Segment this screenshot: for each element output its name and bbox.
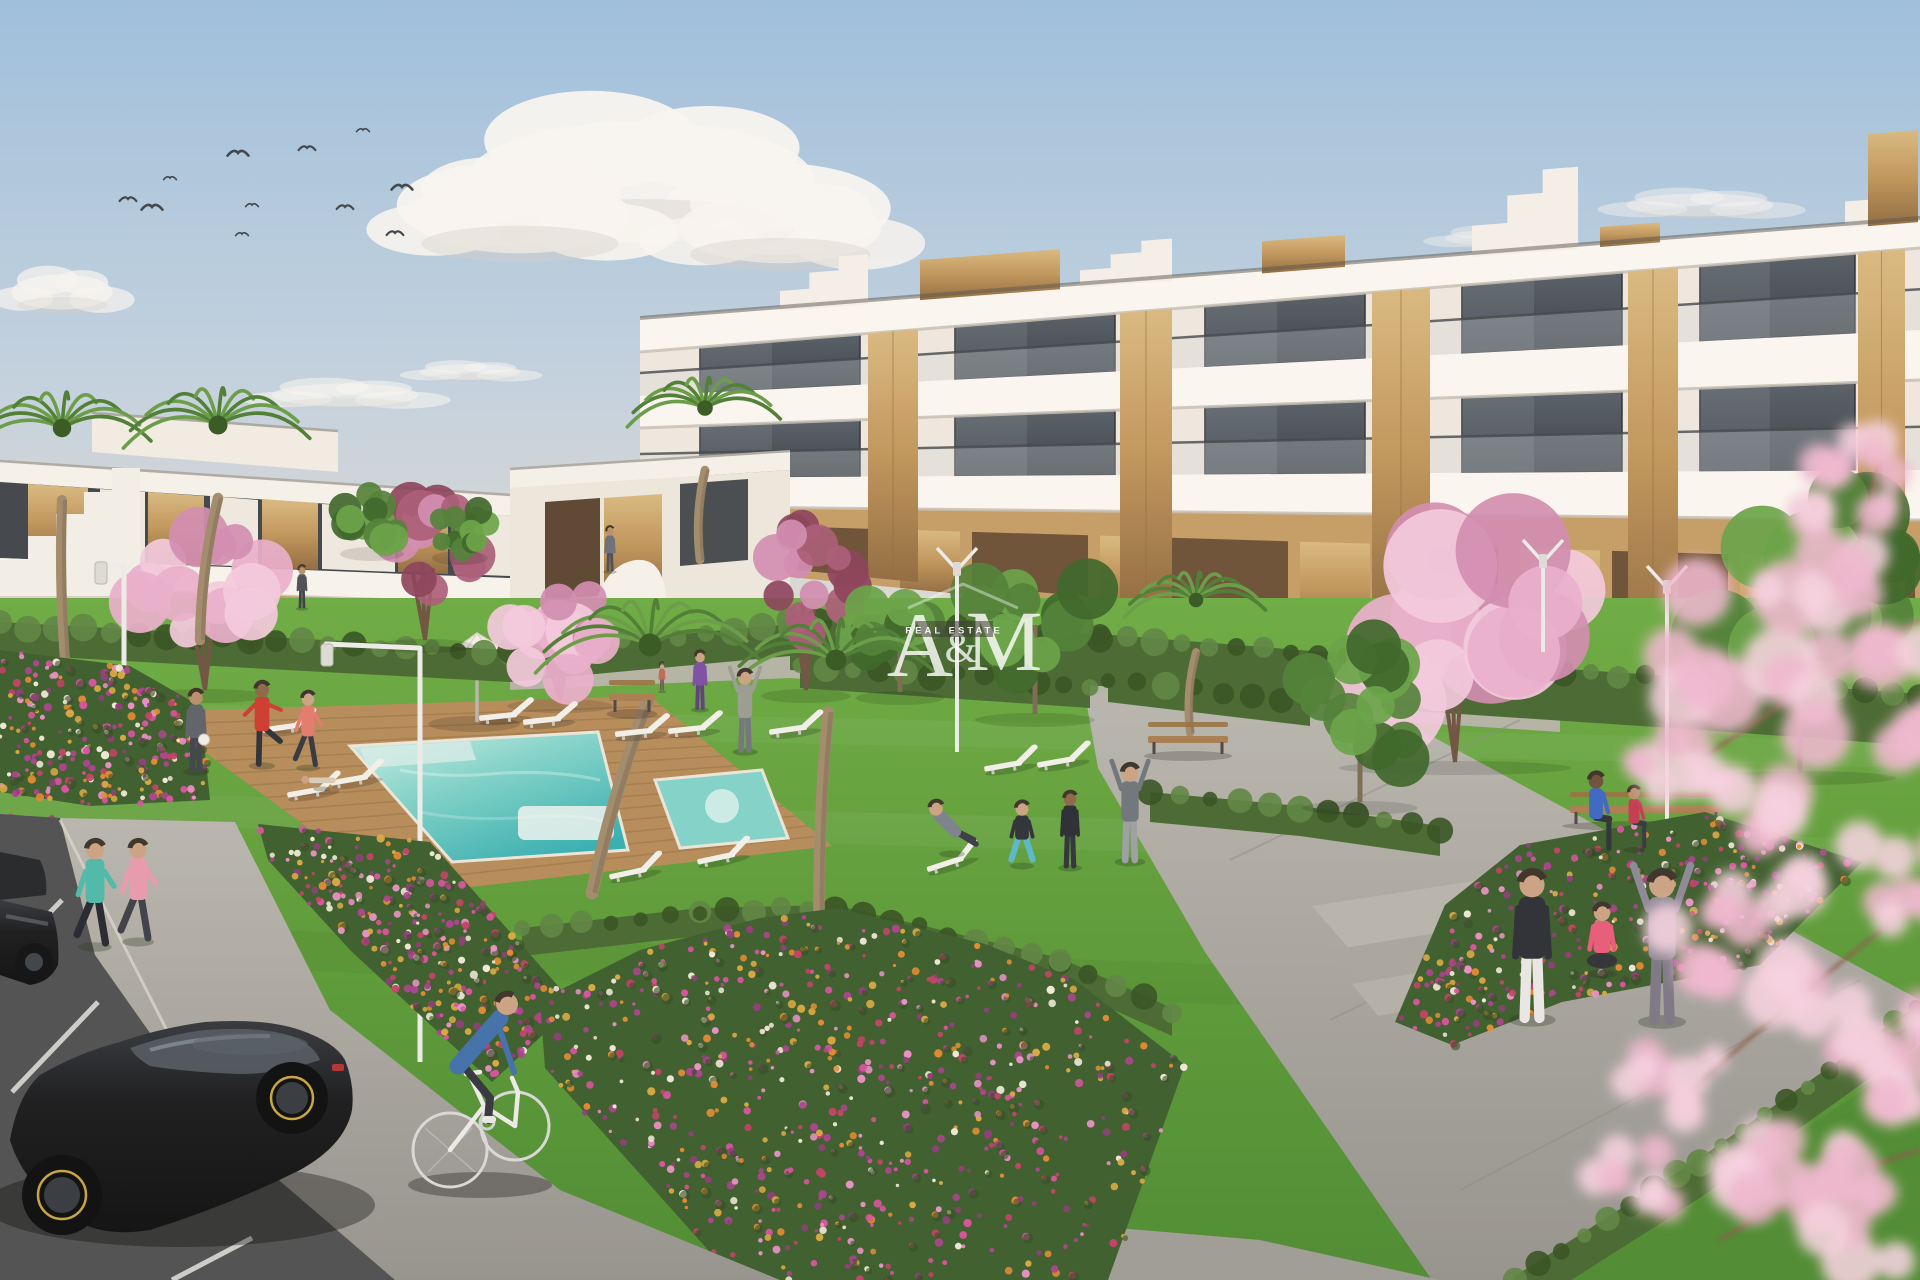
warm-haze (0, 0, 1920, 1280)
architectural-render: A M & REAL ESTATE (0, 0, 1920, 1280)
